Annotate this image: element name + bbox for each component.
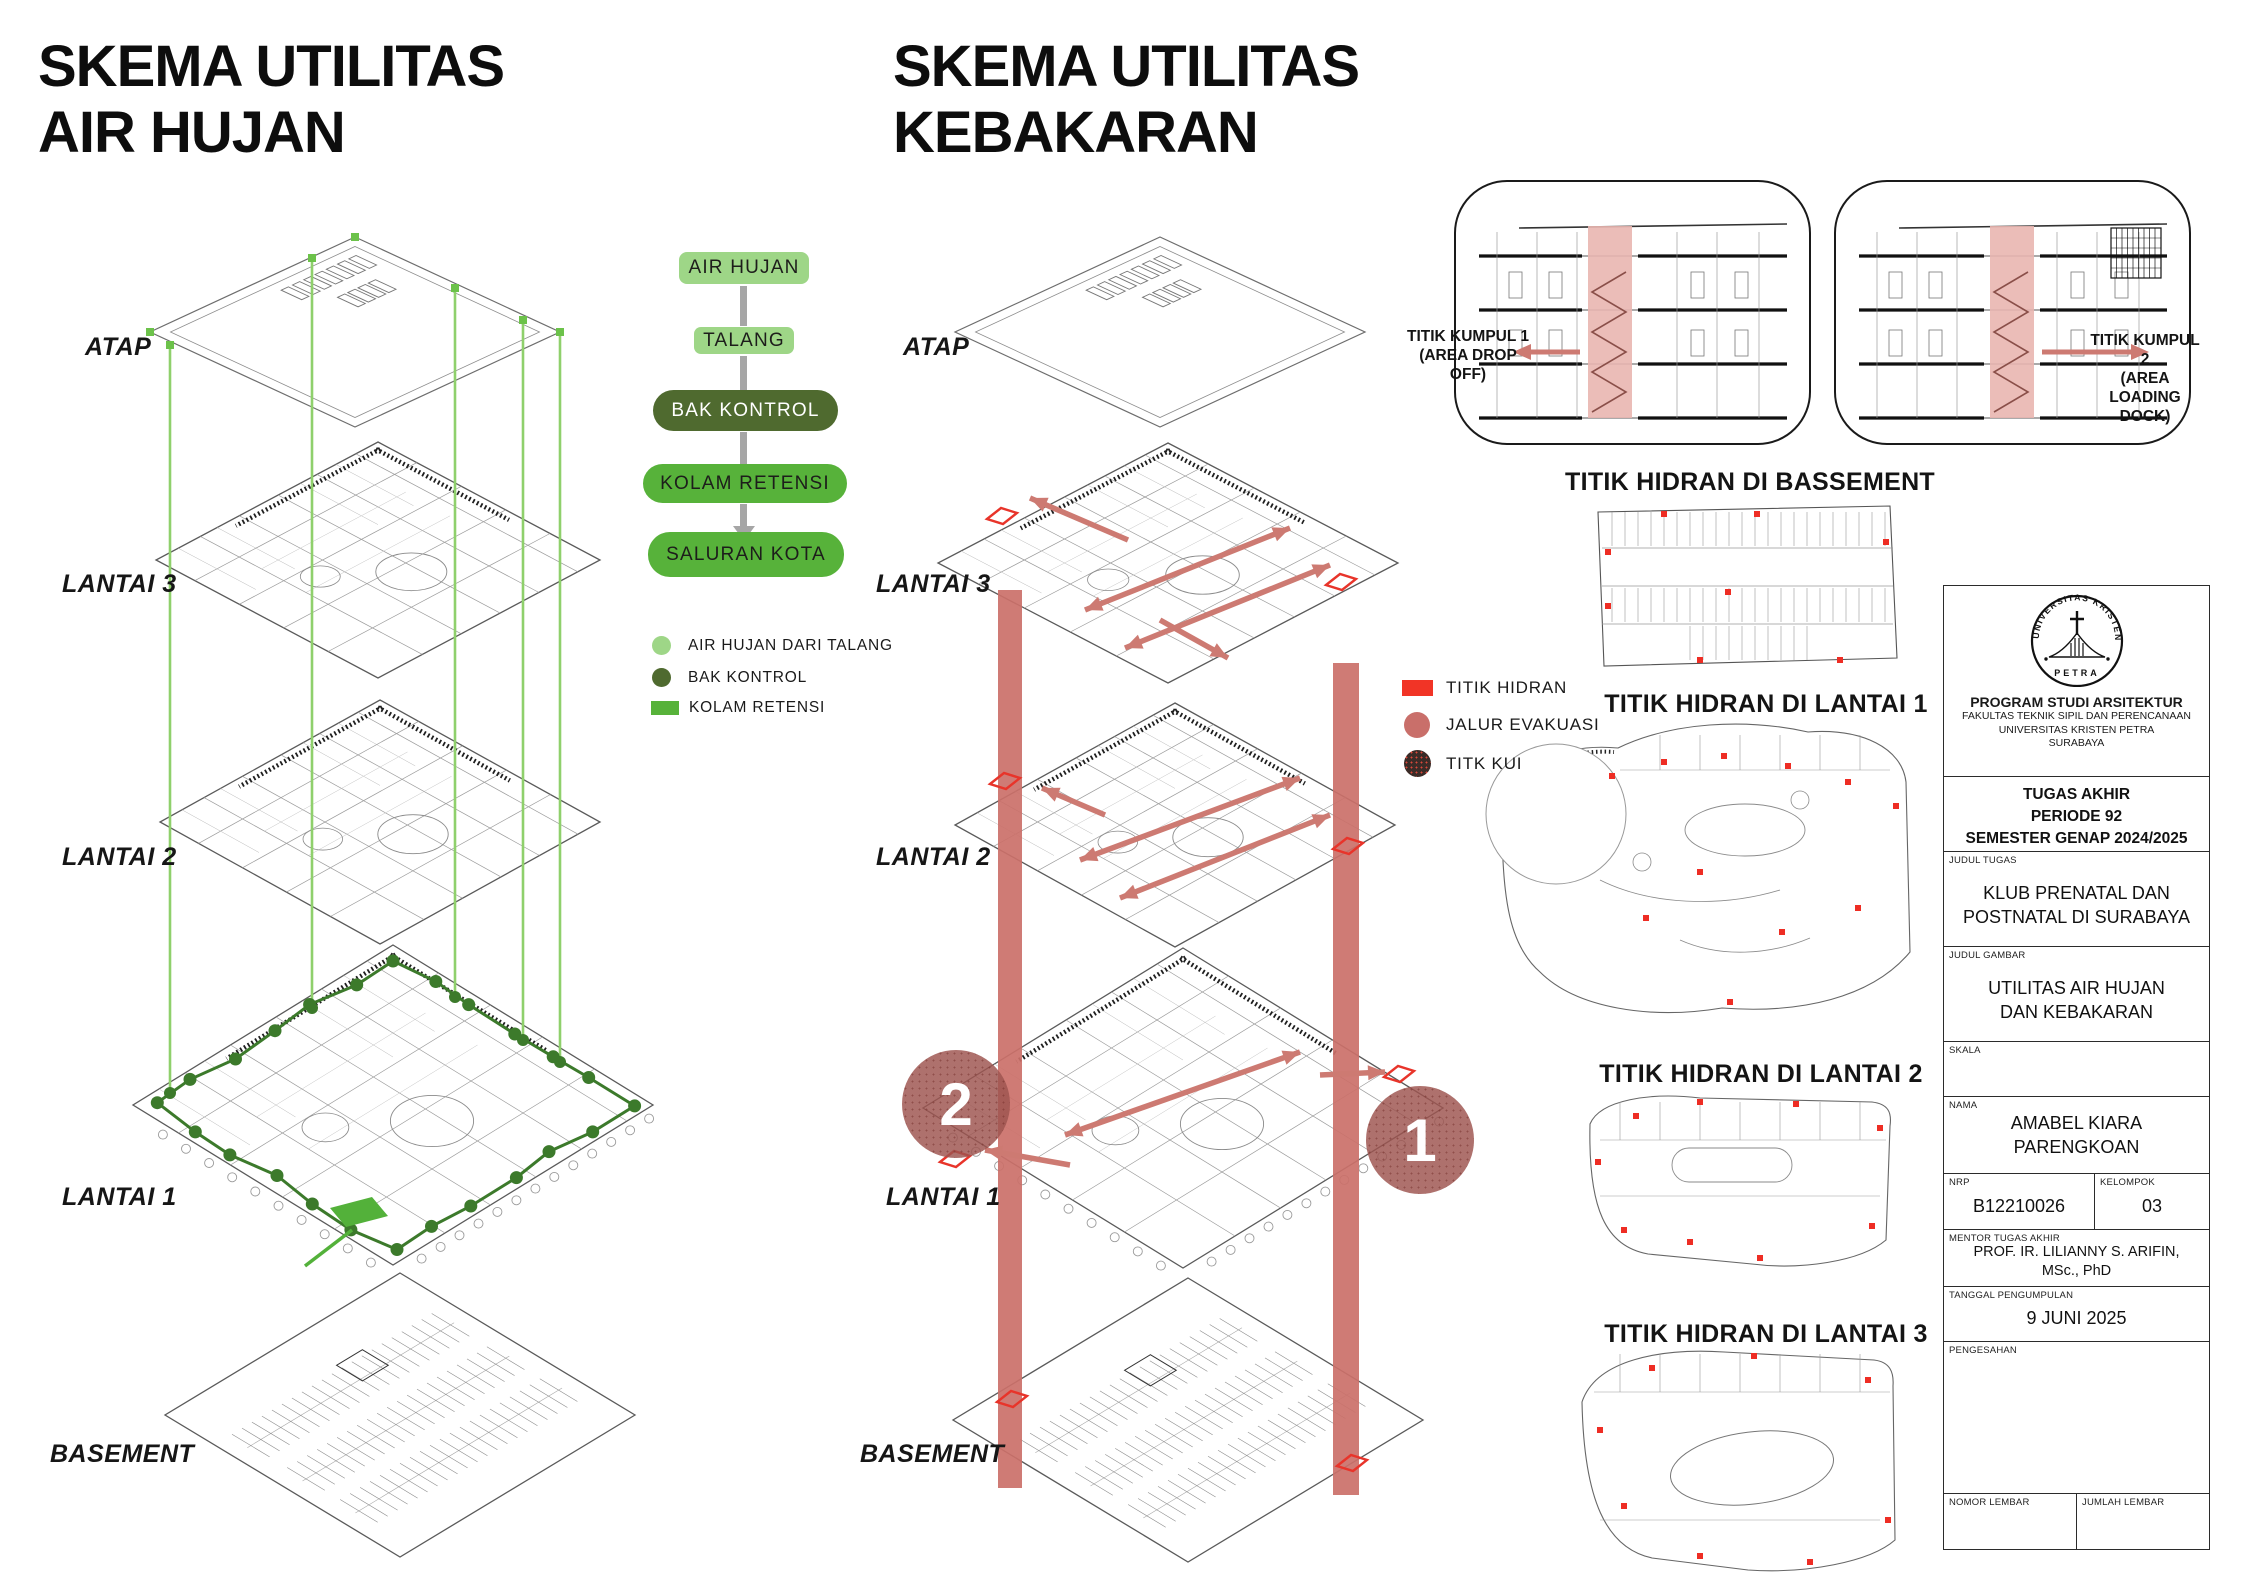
title-block-skala-row: SKALA bbox=[1944, 1041, 2209, 1096]
air-hujan-dari-talang-swatch-icon bbox=[652, 636, 671, 655]
legend-item: TITK KUI bbox=[1402, 750, 1600, 777]
tanggal-label: TANGGAL PENGUMPULAN bbox=[1949, 1290, 2073, 1301]
city-name: SURABAYA bbox=[1944, 737, 2209, 751]
faculty-name: FAKULTAS TEKNIK SIPIL DAN PERENCANAAN bbox=[1944, 710, 2209, 724]
legend-item: KOLAM RETENSI bbox=[652, 699, 893, 717]
flow-connector bbox=[740, 356, 747, 390]
title-block-tanggal-row: TANGGAL PENGUMPULAN 9 JUNI 2025 bbox=[1944, 1286, 2209, 1341]
kolam-retensi-swatch-icon bbox=[651, 701, 679, 715]
skala-label: SKALA bbox=[1949, 1045, 1981, 1056]
legend-label: JALUR EVAKUASI bbox=[1446, 715, 1600, 735]
fire-axon-atap bbox=[955, 237, 1365, 427]
flow-step-bak-kontrol: BAK KONTROL bbox=[653, 390, 838, 431]
legend-item: BAK KONTROL bbox=[652, 668, 893, 687]
hydrant-plan-title-lantai3: TITIK HIDRAN DI LANTAI 3 bbox=[1604, 1320, 1927, 1349]
legend-item: JALUR EVAKUASI bbox=[1402, 712, 1600, 738]
drawing-sheet: SKEMA UTILITAS AIR HUJAN SKEMA UTILITAS … bbox=[0, 0, 2245, 1587]
building-section-titik-kumpul-1 bbox=[1455, 181, 1810, 444]
jumlah-lembar-cell: JUMLAH LEMBAR bbox=[2076, 1494, 2209, 1549]
legend-label: AIR HUJAN DARI TALANG bbox=[688, 637, 893, 655]
university-name: UNIVERSITAS KRISTEN PETRA bbox=[1944, 724, 2209, 738]
title-block-pengesahan-row: PENGESAHAN bbox=[1944, 1341, 2209, 1493]
jalur-evakuasi-swatch-icon bbox=[1404, 712, 1430, 738]
legend-label: KOLAM RETENSI bbox=[689, 699, 825, 717]
judul-gambar-label: JUDUL GAMBAR bbox=[1949, 950, 2025, 961]
nrp-value: B12210026 bbox=[1944, 1195, 2094, 1219]
kelompok-value: 03 bbox=[2095, 1195, 2209, 1219]
judul-tugas-label: JUDUL TUGAS bbox=[1949, 855, 2017, 866]
flow-step-kolam-retensi: KOLAM RETENSI bbox=[643, 464, 847, 503]
program-name: PROGRAM STUDI ARSITEKTUR bbox=[1944, 694, 2209, 710]
mentor-value: PROF. IR. LILIANNY S. ARIFIN, MSc., PhD bbox=[1944, 1243, 2209, 1280]
rain-floor-label-lantai3: LANTAI 3 bbox=[62, 570, 177, 599]
fire-floor-label-atap: ATAP bbox=[903, 333, 969, 362]
marker-number: 2 bbox=[939, 1070, 972, 1139]
rain-axon-lantai-3 bbox=[156, 442, 600, 678]
legend-item: TITIK HIDRAN bbox=[1402, 678, 1600, 698]
judul-gambar-value: UTILITAS AIR HUJAN DAN KEBAKARAN bbox=[1944, 977, 2209, 1025]
titik-kumpul-1-label: TITIK KUMPUL 1 (AREA DROP OFF) bbox=[1406, 328, 1530, 385]
title-block-judul-tugas-row: JUDUL TUGAS KLUB PRENATAL DAN POSTNATAL … bbox=[1944, 851, 2209, 946]
legend-label: BAK KONTROL bbox=[688, 669, 807, 687]
rain-legend: AIR HUJAN DARI TALANG BAK KONTROL KOLAM … bbox=[652, 636, 893, 717]
nomor-lembar-label: NOMOR LEMBAR bbox=[1949, 1497, 2030, 1508]
title-block-lembar-row: NOMOR LEMBAR JUMLAH LEMBAR bbox=[1944, 1493, 2209, 1549]
titik-hidran-swatch-icon bbox=[1402, 680, 1433, 696]
title-block-mentor-row: MENTOR TUGAS AKHIR PROF. IR. LILIANNY S.… bbox=[1944, 1229, 2209, 1286]
rain-floor-label-basement: BASEMENT bbox=[50, 1440, 194, 1469]
legend-label: TITIK HIDRAN bbox=[1446, 678, 1567, 698]
logo-bottom-text: PETRA bbox=[2054, 668, 2100, 678]
title-block-nrp-row: NRP B12210026 KELOMPOK 03 bbox=[1944, 1173, 2209, 1229]
hydrant-plan-lantai-3 bbox=[1582, 1351, 1895, 1570]
rain-axon-basement bbox=[165, 1273, 635, 1557]
hydrant-plan-title-basement: TITIK HIDRAN DI BASSEMENT bbox=[1565, 468, 1935, 497]
judul-tugas-value: KLUB PRENATAL DAN POSTNATAL DI SURABAYA bbox=[1944, 882, 2209, 930]
flow-connector bbox=[740, 432, 747, 464]
titik-kumpul-2-label: TITIK KUMPUL 2 (AREA LOADING DOCK) bbox=[2088, 332, 2202, 427]
hydrant-plan-basement bbox=[1598, 506, 1897, 666]
nomor-lembar-cell: NOMOR LEMBAR bbox=[1944, 1494, 2076, 1549]
rain-scheme-title: SKEMA UTILITAS AIR HUJAN bbox=[38, 34, 504, 165]
fire-floor-label-basement: BASEMENT bbox=[860, 1440, 1004, 1469]
periode-text: TUGAS AKHIR PERIODE 92 SEMESTER GENAP 20… bbox=[1944, 784, 2209, 850]
bak-kontrol-swatch-icon bbox=[652, 668, 671, 687]
fire-floor-label-lantai2: LANTAI 2 bbox=[876, 843, 991, 872]
title-block: UNIVERSITAS KRISTEN PETRA PROGRAM STUDI … bbox=[1943, 585, 2210, 1550]
flow-connector bbox=[740, 286, 747, 326]
flow-step-air-hujan: AIR HUJAN bbox=[679, 252, 809, 284]
marker-number: 1 bbox=[1403, 1106, 1436, 1175]
tanggal-value: 9 JUNI 2025 bbox=[1944, 1307, 2209, 1331]
flow-step-saluran-kota: SALURAN KOTA bbox=[648, 532, 844, 577]
universitas-kristen-petra-logo-icon: UNIVERSITAS KRISTEN PETRA bbox=[2027, 591, 2127, 687]
nrp-label: NRP bbox=[1949, 1177, 1970, 1188]
legend-label: TITK KUI bbox=[1446, 754, 1522, 774]
title-block-nama-row: NAMA AMABEL KIARA PARENGKOAN bbox=[1944, 1096, 2209, 1173]
evacuation-marker-2: 2 bbox=[902, 1050, 1010, 1158]
rain-floor-label-lantai1: LANTAI 1 bbox=[62, 1183, 177, 1212]
pengesahan-label: PENGESAHAN bbox=[1949, 1345, 2017, 1356]
rain-floor-label-lantai2: LANTAI 2 bbox=[62, 843, 177, 872]
nama-value: AMABEL KIARA PARENGKOAN bbox=[1944, 1112, 2209, 1160]
nama-label: NAMA bbox=[1949, 1100, 1977, 1111]
hydrant-plan-lantai-2 bbox=[1590, 1096, 1891, 1266]
hydrant-plan-title-lantai1: TITIK HIDRAN DI LANTAI 1 bbox=[1604, 690, 1927, 719]
title-block-periode-row: TUGAS AKHIR PERIODE 92 SEMESTER GENAP 20… bbox=[1944, 776, 2209, 851]
rain-axon-atap bbox=[150, 237, 560, 427]
hydrant-plan-title-lantai2: TITIK HIDRAN DI LANTAI 2 bbox=[1599, 1060, 1922, 1089]
flow-connector bbox=[740, 504, 747, 527]
fire-floor-label-lantai1: LANTAI 1 bbox=[886, 1183, 1001, 1212]
title-block-header: UNIVERSITAS KRISTEN PETRA PROGRAM STUDI … bbox=[1944, 586, 2209, 776]
kelompok-cell: KELOMPOK 03 bbox=[2094, 1174, 2209, 1229]
jumlah-lembar-label: JUMLAH LEMBAR bbox=[2082, 1497, 2164, 1508]
rain-floor-label-atap: ATAP bbox=[85, 333, 151, 362]
evacuation-marker-1: 1 bbox=[1366, 1086, 1474, 1194]
legend-item: AIR HUJAN DARI TALANG bbox=[652, 636, 893, 655]
fire-legend: TITIK HIDRAN JALUR EVAKUASI TITK KUI bbox=[1402, 678, 1600, 777]
nrp-cell: NRP B12210026 bbox=[1944, 1174, 2094, 1229]
flow-step-talang: TALANG bbox=[694, 327, 794, 354]
rain-axon-lantai-1 bbox=[133, 945, 654, 1267]
kelompok-label: KELOMPOK bbox=[2100, 1177, 2155, 1188]
titik-kumpul-swatch-icon bbox=[1404, 750, 1431, 777]
rain-axon-lantai-2 bbox=[160, 700, 600, 944]
title-block-judul-gambar-row: JUDUL GAMBAR UTILITAS AIR HUJAN DAN KEBA… bbox=[1944, 946, 2209, 1041]
fire-scheme-title: SKEMA UTILITAS KEBAKARAN bbox=[893, 34, 1359, 165]
fire-floor-label-lantai3: LANTAI 3 bbox=[876, 570, 991, 599]
